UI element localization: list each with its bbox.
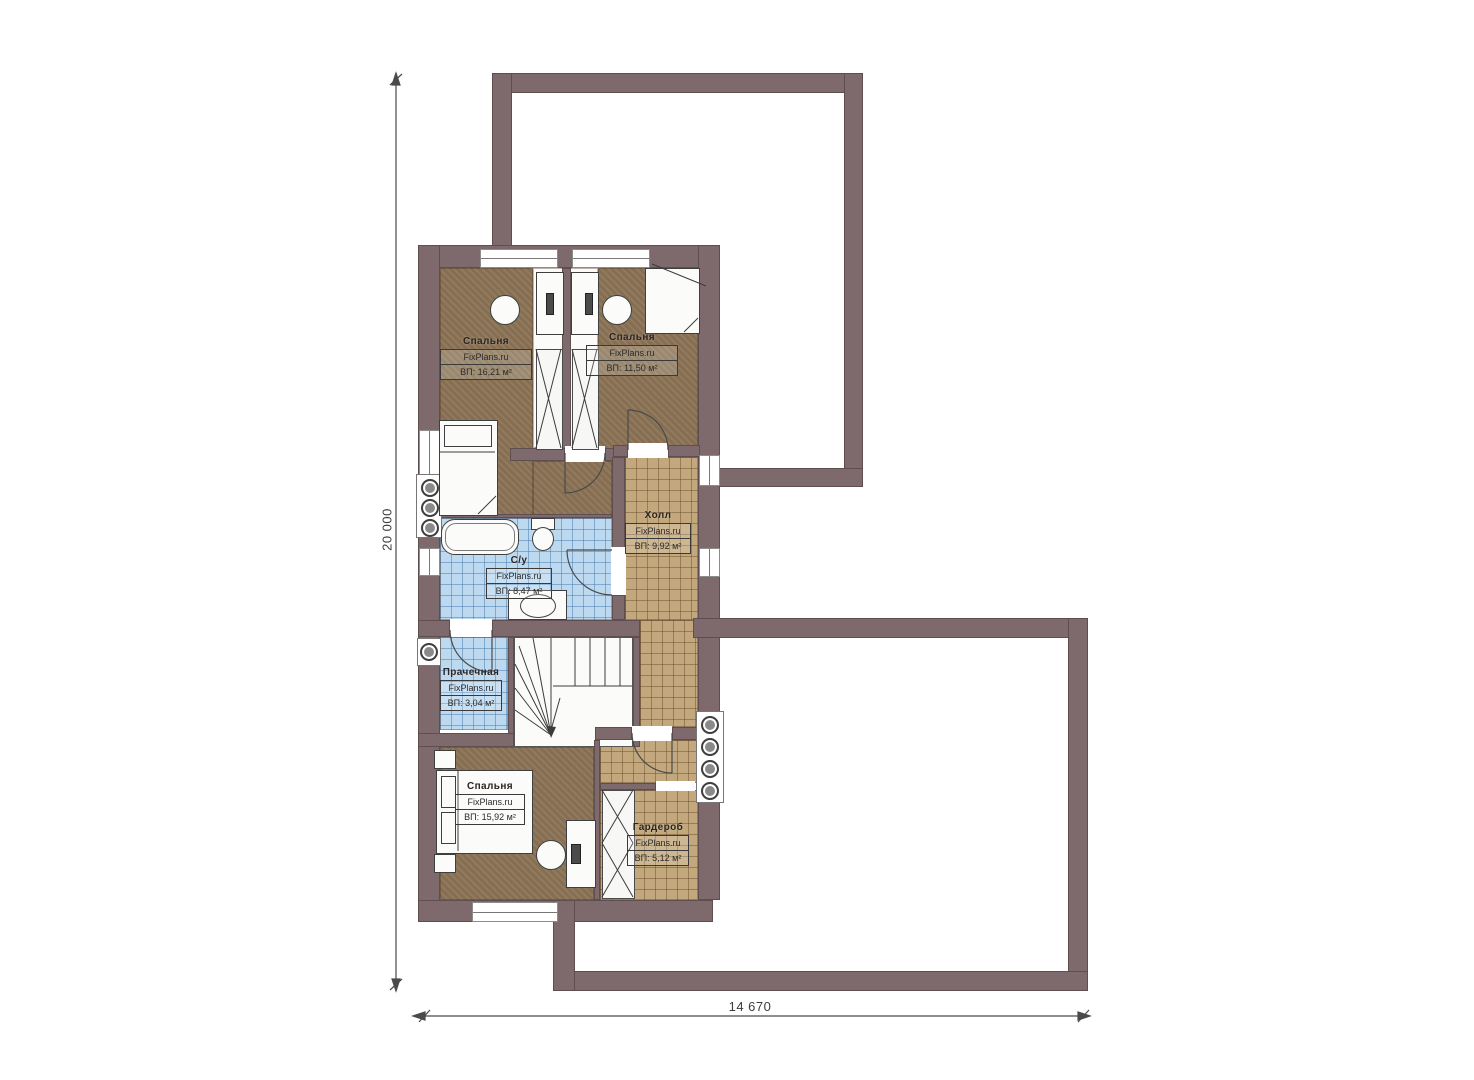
chair <box>536 840 566 870</box>
watermark-text: FixPlans.ru <box>487 569 551 583</box>
door-opening-bedroom-tr <box>628 443 668 458</box>
toilet-bowl <box>532 527 554 551</box>
room-area: ВП: 11,50 м² <box>587 360 677 375</box>
wall-main-top <box>418 245 720 268</box>
wall-hall-bottom-a <box>595 727 632 740</box>
pillow <box>441 812 456 844</box>
wall-bottomright-room-right <box>1068 618 1088 991</box>
watermark-text: FixPlans.ru <box>441 350 531 364</box>
window-left-1 <box>419 430 440 479</box>
dimension-height-label: 20 000 <box>380 499 395 561</box>
window-right-2 <box>699 548 720 577</box>
room-label-bathroom: С/у FixPlans.ru ВП: 8,47 м² <box>486 555 552 599</box>
pillow <box>444 425 492 447</box>
wall-bedroom-bottom-top <box>418 733 514 747</box>
wall-topright-room-top <box>492 73 863 93</box>
room-area: ВП: 8,47 м² <box>487 583 551 598</box>
room-label-laundry: Прачечная FixPlans.ru ВП: 3,04 м² <box>440 667 502 711</box>
watermark-text: FixPlans.ru <box>441 681 501 695</box>
wardrobe-cabinet <box>536 349 563 450</box>
wall-stairs-left <box>508 637 514 747</box>
room-name: Холл <box>625 510 691 521</box>
wall-bottomright-room-bottom <box>553 971 1088 991</box>
wall-bathroom-right-b <box>612 595 625 620</box>
watermark-text: FixPlans.ru <box>587 346 677 360</box>
chair <box>602 295 632 325</box>
wall-bottomright-room-top <box>693 618 1088 638</box>
window-right-1 <box>699 455 720 486</box>
vent-circle <box>701 760 719 778</box>
desk <box>645 268 700 334</box>
door-opening-bedroom-bottom <box>632 726 672 741</box>
room-area: ВП: 9,92 м² <box>626 538 690 553</box>
room-label-bedroom-bottom: Спальня FixPlans.ru ВП: 15,92 м² <box>455 781 525 825</box>
room-area: ВП: 16,21 м² <box>441 364 531 379</box>
room-area: ВП: 5,12 м² <box>628 850 688 865</box>
nightstand <box>434 854 456 873</box>
nightstand <box>434 750 456 769</box>
vent-circle <box>421 519 439 537</box>
room-name: Спальня <box>440 336 532 347</box>
floor-plan: 20 000 14 670 Спальня FixPlans.ru ВП: 16… <box>0 0 1474 1080</box>
door-opening-bathroom <box>611 547 626 595</box>
room-label-bedroom-tl: Спальня FixPlans.ru ВП: 16,21 м² <box>440 336 532 380</box>
pillow <box>441 776 456 808</box>
room-area: ВП: 3,04 м² <box>441 695 501 710</box>
wall-bedroom-tr-bottom-b <box>668 445 700 457</box>
room-name: С/у <box>486 555 552 566</box>
chair <box>490 295 520 325</box>
monitor <box>585 293 593 315</box>
monitor <box>546 293 554 315</box>
vent-circle <box>421 499 439 517</box>
bathtub-inner <box>445 523 515 551</box>
wall-bathroom-bottom-a <box>418 620 450 637</box>
room-area: ВП: 15,92 м² <box>456 809 524 824</box>
wall-bedroom-tr-bottom-a <box>613 445 628 457</box>
room-label-hall: Холл FixPlans.ru ВП: 9,92 м² <box>625 510 691 554</box>
wall-hall-bottom-b <box>672 727 698 740</box>
window-left-2 <box>419 548 440 576</box>
wall-topright-room-right <box>844 73 863 487</box>
monitor <box>571 844 581 864</box>
watermark-text: FixPlans.ru <box>456 795 524 809</box>
wall-topright-room-left <box>492 73 512 249</box>
vent-circle <box>701 716 719 734</box>
window-top-1 <box>480 249 558 268</box>
floor-bedroom-top-left-lower <box>533 461 612 518</box>
room-name: Спальня <box>586 332 678 343</box>
room-name: Прачечная <box>440 667 502 678</box>
vent-circle <box>701 738 719 756</box>
window-bottom-1 <box>472 902 558 922</box>
room-label-wardrobe: Гардероб FixPlans.ru ВП: 5,12 м² <box>627 822 689 866</box>
dimension-width-label: 14 670 <box>718 999 782 1014</box>
floor-hall-lower <box>640 620 698 727</box>
wall-topright-room-bottom <box>700 468 863 487</box>
watermark-text: FixPlans.ru <box>626 524 690 538</box>
room-name: Гардероб <box>627 822 689 833</box>
room-label-bedroom-tr: Спальня FixPlans.ru ВП: 11,50 м² <box>586 332 678 376</box>
plan-linework <box>0 0 1474 1080</box>
wall-bathroom-bottom-b <box>492 620 640 637</box>
watermark-text: FixPlans.ru <box>628 836 688 850</box>
vent-circle <box>701 782 719 800</box>
door-opening-laundry <box>450 619 492 637</box>
vent-circle <box>420 643 438 661</box>
room-name: Спальня <box>455 781 525 792</box>
window-top-2 <box>572 249 650 268</box>
door-opening-wardrobe <box>656 781 695 791</box>
wall-wardrobe-top <box>600 783 656 790</box>
vent-circle <box>421 479 439 497</box>
wall-bathroom-right-a <box>612 457 625 548</box>
